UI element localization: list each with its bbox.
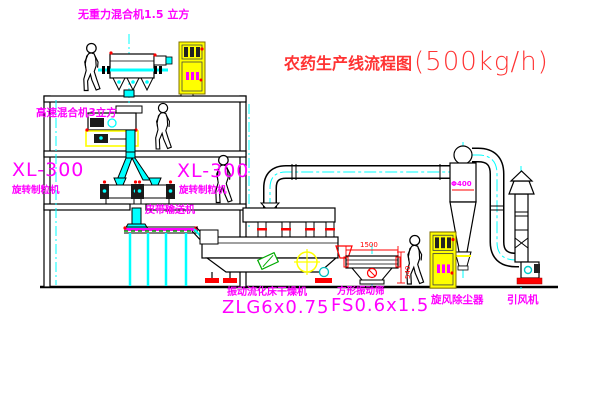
dimension-sieve-length: 1500 <box>360 242 378 249</box>
label-cyclone-diameter: Φ400 <box>451 181 472 188</box>
gravity-free-mixer <box>98 51 172 97</box>
label-cyclone-name: 旋风除尘器 <box>431 295 484 306</box>
title-capacity: (500kg/h) <box>414 47 549 77</box>
control-cabinet-2 <box>430 232 456 288</box>
induced-draft-fan <box>517 262 542 284</box>
label-high-speed-mixer: 高速混合机3立方 <box>36 108 117 119</box>
label-granulator-left-name: 旋转制粒机 <box>12 186 60 196</box>
label-fan-name: 引风机 <box>507 295 539 306</box>
person-2 <box>156 103 172 149</box>
granulator-left <box>100 178 140 204</box>
label-dryer-model: ZLG6x0.75 <box>222 299 330 317</box>
label-granulator-right-model: XL-300 <box>177 162 249 181</box>
label-belt-conveyor: 皮带输送机 <box>145 206 195 216</box>
exhaust-duct <box>261 164 450 213</box>
label-sieve-model: FS0.6x1.5 <box>331 297 429 315</box>
granulator-right <box>135 178 175 204</box>
person-1 <box>84 43 100 90</box>
belt-conveyor <box>123 226 198 286</box>
fluid-bed-dryer <box>200 208 338 283</box>
control-cabinet-1 <box>179 42 205 94</box>
main-duct <box>472 155 519 260</box>
label-granulator-left-model: XL-300 <box>12 161 84 180</box>
dimension-sieve-height: 540 <box>405 266 412 279</box>
diagram-title: 农药生产线流程图 (500kg/h) <box>284 47 549 77</box>
exhaust-stack <box>509 171 534 262</box>
vibrating-sieve <box>344 246 405 284</box>
label-top-mixer: 无重力混合机1.5 立方 <box>78 9 189 20</box>
title-text: 农药生产线流程图 <box>284 50 412 74</box>
flow-diagram-canvas: 农药生产线流程图 (500kg/h) 无重力混合机1.5 立方 高速混合机3立方… <box>0 0 600 403</box>
label-granulator-right-name: 旋转制粒机 <box>179 186 227 196</box>
